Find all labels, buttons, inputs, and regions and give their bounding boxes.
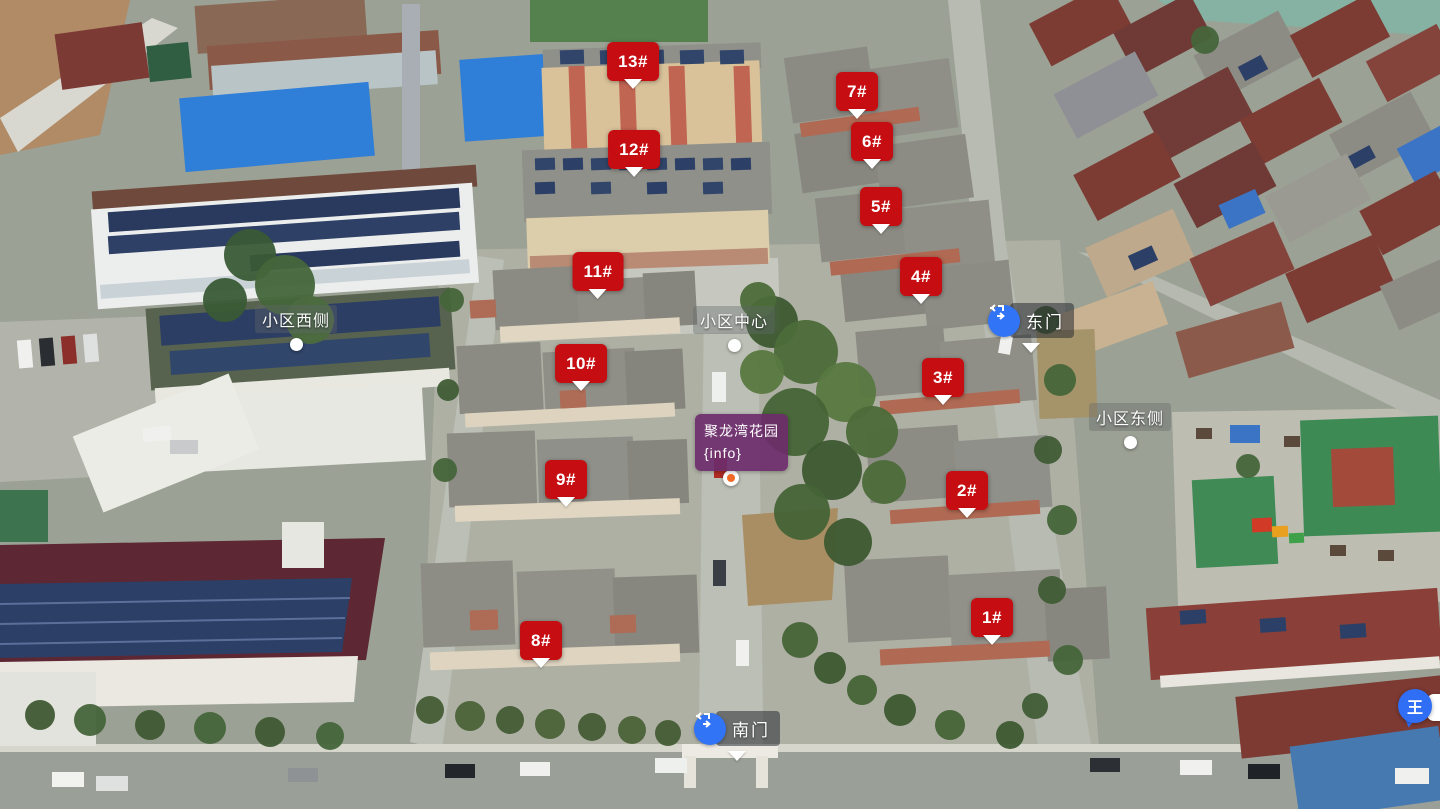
building-marker-label: 10# [555,344,607,383]
hotspot-dot-icon [289,338,302,351]
marker-pointer-icon [532,658,550,668]
marker-pointer-icon [872,224,890,234]
building-marker-2[interactable]: 2# [946,471,988,518]
hotspot-dot-icon [727,339,740,352]
community-location-pin [723,470,739,486]
marker-pointer-icon [557,497,575,507]
gate-enter-icon [988,305,1020,337]
building-marker-label: 12# [608,130,660,169]
marker-pointer-icon [572,381,590,391]
community-info-placeholder: {info} [704,442,779,464]
building-marker-3[interactable]: 3# [922,358,964,405]
area-hotspot-east[interactable]: 小区东侧 [1089,403,1171,449]
area-label: 小区中心 [693,306,775,334]
building-marker-label: 3# [922,358,964,397]
building-marker-label: 8# [520,621,562,660]
building-marker-1[interactable]: 1# [971,598,1013,645]
marker-pointer-icon [848,109,866,119]
marker-pointer-icon [589,289,607,299]
building-marker-label: 9# [545,460,587,499]
marker-pointer-icon [624,79,642,89]
building-marker-label: 6# [851,122,893,161]
south-gate-marker[interactable]: 南门 [694,711,780,761]
building-marker-label: 2# [946,471,988,510]
aerial-photo-scene [0,0,1440,809]
east-gate-marker[interactable]: 东门 [988,303,1074,353]
marker-pointer-icon [958,508,976,518]
marker-pointer-icon [912,294,930,304]
building-marker-label: 4# [900,257,942,296]
marker-pointer-icon [863,159,881,169]
building-marker-12[interactable]: 12# [608,130,660,177]
building-marker-label: 1# [971,598,1013,637]
aerial-panorama-view[interactable]: 1# 2# 3# 4# 5# 6# 7# 8# 9# 10# 11# [0,0,1440,809]
area-hotspot-center[interactable]: 小区中心 [693,306,775,352]
area-hotspot-west[interactable]: 小区西侧 [255,305,337,351]
building-marker-6[interactable]: 6# [851,122,893,169]
community-info-card[interactable]: 聚龙湾花园 {info} [695,414,788,471]
building-marker-8[interactable]: 8# [520,621,562,668]
building-marker-11[interactable]: 11# [573,252,624,299]
building-marker-label: 11# [573,252,624,291]
hotspot-dot-icon [1123,436,1136,449]
marker-pointer-icon [625,167,643,177]
marker-pointer-icon [983,635,1001,645]
building-marker-7[interactable]: 7# [836,72,878,119]
marker-pointer-icon [934,395,952,405]
building-marker-label: 13# [607,42,659,81]
community-name: 聚龙湾花园 [704,420,779,442]
area-label: 小区东侧 [1089,403,1171,431]
marker-pointer-icon [1022,343,1040,353]
building-marker-label: 5# [860,187,902,226]
building-marker-5[interactable]: 5# [860,187,902,234]
building-marker-10[interactable]: 10# [555,344,607,391]
building-marker-9[interactable]: 9# [545,460,587,507]
im-chat-button[interactable]: 王 [1398,689,1440,729]
marker-pointer-icon [728,751,746,761]
building-marker-label: 7# [836,72,878,111]
building-marker-13[interactable]: 13# [607,42,659,89]
building-marker-4[interactable]: 4# [900,257,942,304]
gate-enter-icon [694,713,726,745]
area-label: 小区西侧 [255,305,337,333]
agent-avatar: 王 [1398,689,1432,723]
